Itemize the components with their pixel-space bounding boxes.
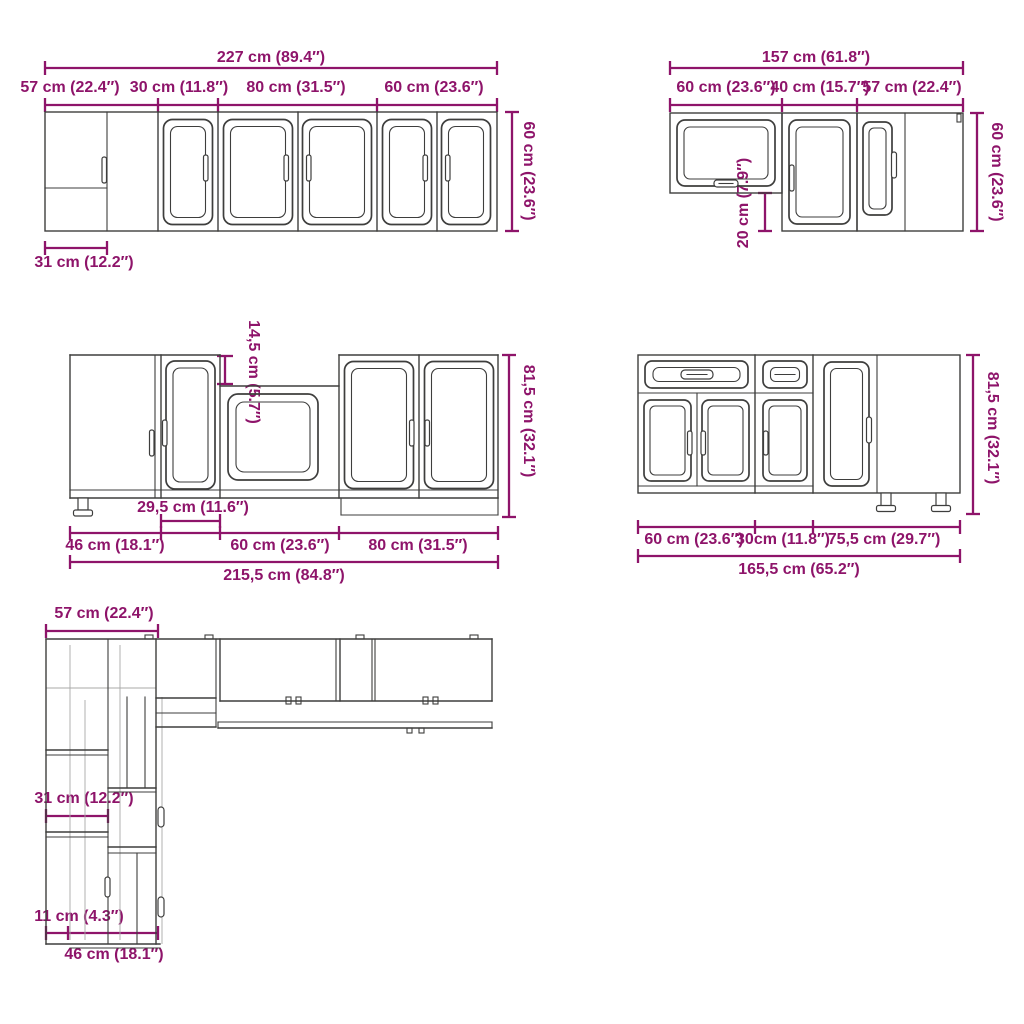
door-handle — [410, 420, 415, 446]
door-inner — [869, 128, 886, 209]
dim-seg1-d: 60 cm (23.6″) — [644, 531, 743, 548]
dim-total-a: 227 cm (89.4″) — [217, 49, 325, 66]
door-handle — [688, 431, 693, 455]
door-handle — [158, 807, 164, 827]
door-frame — [702, 400, 749, 481]
dim-seg1-b: 60 cm (23.6″) — [676, 79, 775, 96]
door-inner — [769, 406, 801, 475]
dim-drop-b: 20 cm (7.9″) — [735, 158, 752, 248]
door-frame — [644, 400, 691, 481]
door-inner — [171, 127, 206, 218]
door-inner — [684, 127, 768, 179]
dim-total-c: 215,5 cm (84.8″) — [223, 567, 345, 584]
door-inner — [449, 127, 484, 218]
door-handle — [150, 430, 155, 456]
dim-seg1-a: 57 cm (22.4″) — [20, 79, 119, 96]
door-handle — [204, 155, 209, 181]
dim-seg3-b: 57 cm (22.4″) — [862, 79, 961, 96]
dim-total-d: 165,5 cm (65.2″) — [738, 561, 860, 578]
door-handle — [425, 420, 430, 446]
dim-seg1-c: 46 cm (18.1″) — [65, 537, 164, 554]
door-handle — [701, 431, 706, 455]
door-frame — [863, 122, 892, 215]
door-handle — [163, 420, 168, 446]
dim-seg2-b: 40 cm (15.7″) — [770, 79, 869, 96]
dim-corner-inset-a: 31 cm (12.2″) — [34, 254, 133, 271]
door-handle — [446, 155, 451, 181]
door-frame — [303, 120, 372, 225]
door-frame — [763, 400, 807, 481]
door-handle — [105, 877, 110, 897]
kitchen-cabinet-dimension-diagram: 227 cm (89.4″) 57 cm (22.4″) 30 cm (11.8… — [0, 0, 1024, 1024]
dim-seg3-c: 80 cm (31.5″) — [368, 537, 467, 554]
corner-layout-lines — [46, 635, 492, 948]
dim-total-b: 157 cm (61.8″) — [762, 49, 870, 66]
dim-seg3-d: 75,5 cm (29.7″) — [828, 531, 941, 548]
door-inner — [310, 127, 365, 218]
dim-height-d: 81,5 cm (32.1″) — [984, 372, 1001, 485]
door-inner — [390, 127, 425, 218]
base-cabinet-bodies-b — [638, 355, 960, 512]
door-handle — [423, 155, 428, 181]
door-frame — [345, 362, 414, 489]
wall-cabinet-bodies-b — [670, 113, 963, 231]
drawing-base-run-a: 14,5 cm (5.7″) 29,5 cm (11.6″) 46 cm (18… — [65, 320, 537, 584]
dim-seg4-a: 60 cm (23.6″) — [384, 79, 483, 96]
door-handle — [284, 155, 289, 181]
dim-seg2-c: 60 cm (23.6″) — [230, 537, 329, 554]
cabinet-leg-foot — [74, 510, 93, 516]
door-frame — [425, 362, 494, 489]
door-handle — [892, 152, 897, 178]
dim-seg2-a: 30 cm (11.8″) — [130, 79, 228, 96]
drawing-wall-run-b: 157 cm (61.8″) 60 cm (23.6″) 40 cm (15.7… — [670, 49, 1005, 248]
corner-door-handle — [102, 157, 107, 183]
door-handle — [790, 165, 795, 191]
dim-height-a: 60 cm (23.6″) — [520, 121, 537, 220]
door-inner — [831, 369, 863, 480]
handle-mark — [419, 728, 424, 733]
door-handle — [158, 897, 164, 917]
wall-cabinet-bodies-a — [45, 112, 497, 231]
door-inner — [708, 406, 743, 475]
door-inner — [352, 369, 407, 482]
appliance-opening-frame — [228, 394, 318, 480]
door-inner — [796, 127, 843, 217]
drawing-corner-layout: 57 cm (22.4″) 31 cm (12.2″) 11 cm (4.3″)… — [34, 605, 492, 963]
handle-mark — [407, 728, 412, 733]
door-handle — [764, 431, 769, 455]
door-frame — [789, 120, 850, 224]
dim-narrow-c: 29,5 cm (11.6″) — [137, 499, 249, 516]
cabinet-leg — [78, 498, 88, 510]
door-handle — [867, 417, 872, 443]
door-inner — [231, 127, 286, 218]
drawing-wall-run-a: 227 cm (89.4″) 57 cm (22.4″) 30 cm (11.8… — [20, 49, 537, 271]
dim-seg2-d: 30cm (11.8″) — [736, 531, 830, 548]
diagram-canvas: 227 cm (89.4″) 57 cm (22.4″) 30 cm (11.8… — [0, 0, 1024, 1024]
base-cabinet-bodies-a — [70, 355, 498, 516]
dim-top-e: 57 cm (22.4″) — [54, 605, 153, 622]
cabinet-leg-foot — [877, 506, 896, 512]
dim-height-b: 60 cm (23.6″) — [988, 122, 1005, 221]
door-frame — [224, 120, 293, 225]
dim-seg3-a: 80 cm (31.5″) — [246, 79, 345, 96]
drawing-base-run-b: 60 cm (23.6″) 30cm (11.8″) 75,5 cm (29.7… — [638, 355, 1001, 578]
door-handle — [307, 155, 312, 181]
hinge-mark — [957, 114, 961, 122]
door-inner — [173, 368, 208, 482]
door-frame — [677, 120, 775, 186]
dim-recess-c: 14,5 cm (5.7″) — [245, 320, 262, 424]
dim-small-e: 11 cm (4.3″) — [34, 908, 124, 925]
dim-height-c: 81,5 cm (32.1″) — [520, 365, 537, 478]
door-inner — [432, 369, 487, 482]
cabinet-leg-foot — [932, 506, 951, 512]
door-inner — [650, 406, 685, 475]
